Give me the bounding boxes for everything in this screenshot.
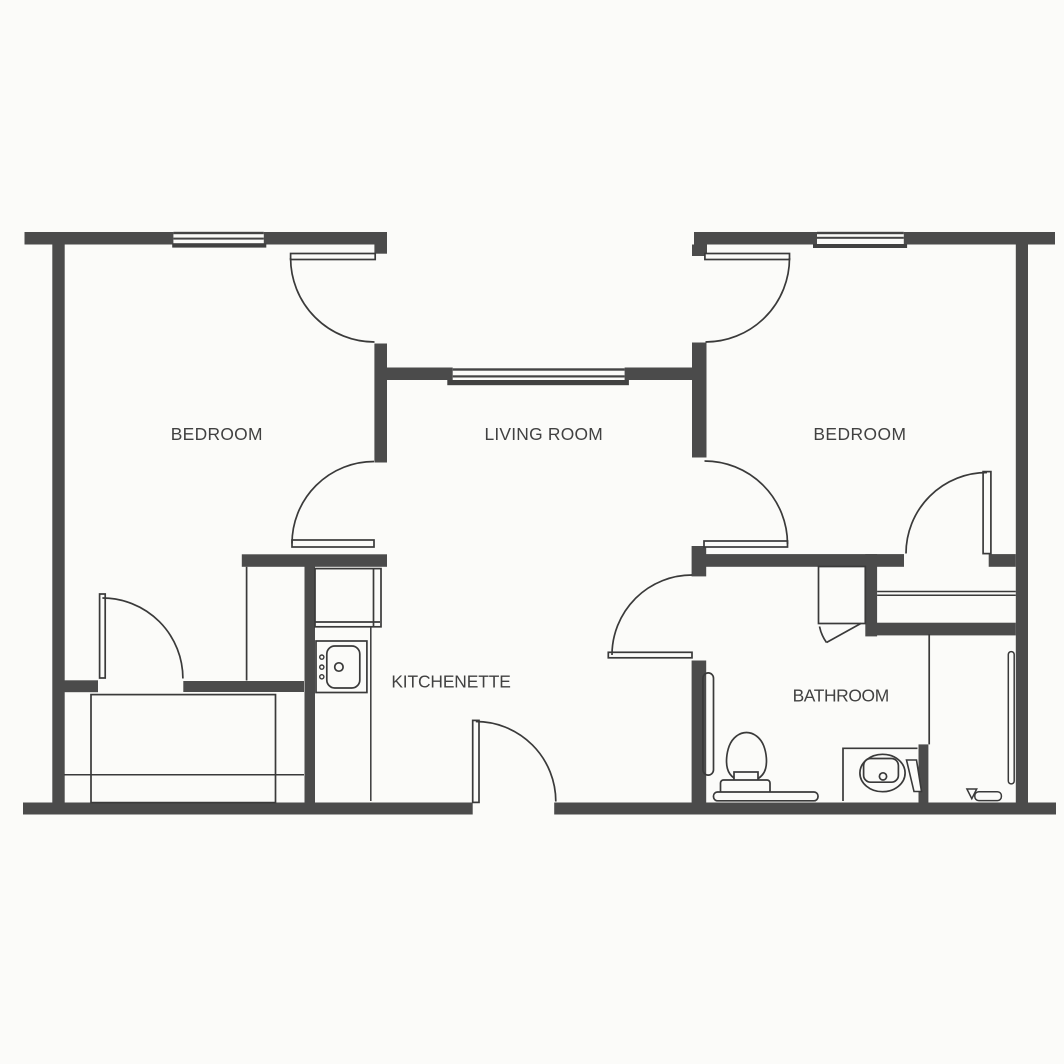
svg-text:BEDROOM: BEDROOM <box>171 424 263 444</box>
svg-text:BEDROOM: BEDROOM <box>813 424 906 444</box>
svg-text:KITCHENETTE: KITCHENETTE <box>391 671 510 691</box>
svg-text:LIVING ROOM: LIVING ROOM <box>484 424 602 444</box>
svg-text:BATHROOM: BATHROOM <box>793 686 889 706</box>
